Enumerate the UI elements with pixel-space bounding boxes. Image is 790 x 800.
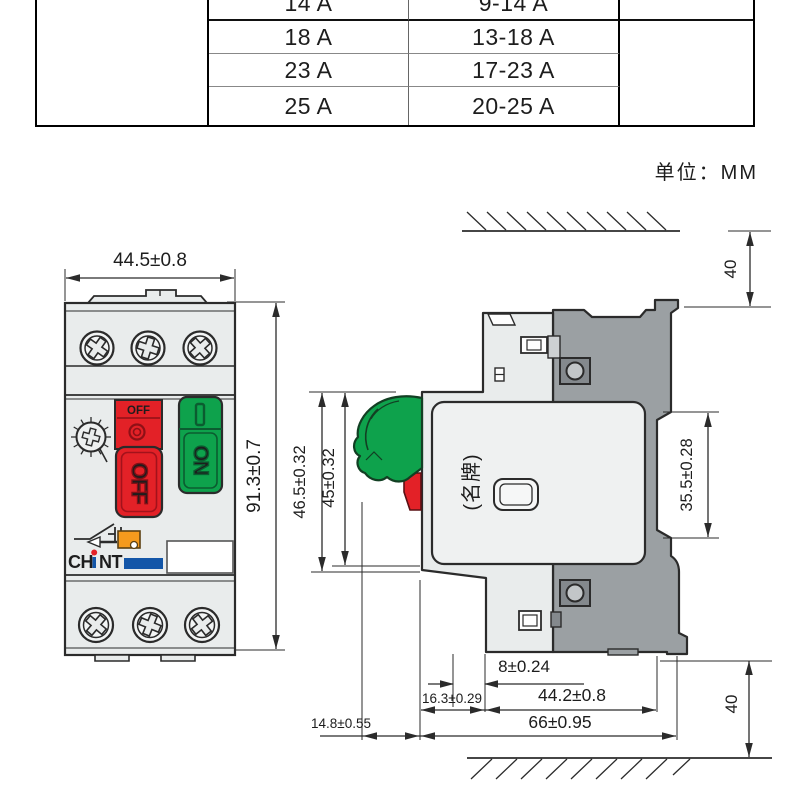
brand-text-right: NT bbox=[99, 552, 122, 572]
dim-8: 8±0.24 bbox=[498, 657, 550, 676]
rail-355-dim: 35.5±0.28 bbox=[678, 438, 696, 511]
nameplate-label: (名牌) bbox=[460, 453, 483, 510]
dim-148: 14.8±0.55 bbox=[311, 716, 371, 731]
page: 14 A 9-14 A 18 A 13-18 A 23 A 17-23 A 25… bbox=[0, 0, 790, 800]
on-button: ON bbox=[179, 397, 222, 493]
front-view: 44.5±0.8 91.3±0.7 bbox=[65, 250, 285, 661]
on-lever-side bbox=[354, 396, 422, 481]
bottom-clearance-dim: 40 bbox=[722, 695, 741, 714]
dimension-drawings: 44.5±0.8 91.3±0.7 bbox=[0, 0, 790, 800]
logo-dot-icon bbox=[91, 550, 97, 556]
depth-45-dim: 45±0.32 bbox=[320, 448, 338, 508]
side-view: (名牌) 40 bbox=[291, 212, 772, 779]
dim-66: 66±0.95 bbox=[528, 712, 591, 732]
dim-442: 44.2±0.8 bbox=[538, 685, 606, 705]
terminal-screw-icon bbox=[79, 608, 219, 642]
off-top-label: OFF bbox=[127, 405, 150, 417]
front-width-dim: 44.5±0.8 bbox=[113, 250, 187, 271]
nameplate-panel: (名牌) bbox=[432, 402, 645, 564]
on-button-label: ON bbox=[189, 445, 212, 475]
top-clearance-dim: 40 bbox=[721, 260, 740, 279]
bottom-wall-hatching bbox=[467, 758, 772, 779]
front-height-dim: 91.3±0.7 bbox=[244, 439, 265, 513]
off-button: OFF OFF bbox=[115, 400, 162, 517]
off-button-label: OFF bbox=[127, 463, 152, 505]
depth-465-dim: 46.5±0.32 bbox=[291, 445, 309, 518]
terminal-screw-icon bbox=[81, 332, 217, 365]
dim-163: 16.3±0.29 bbox=[422, 691, 482, 706]
top-wall-hatching bbox=[462, 212, 771, 231]
logo-bar bbox=[124, 558, 163, 569]
brand-text-left: CH bbox=[68, 552, 93, 572]
label-window bbox=[167, 541, 233, 573]
